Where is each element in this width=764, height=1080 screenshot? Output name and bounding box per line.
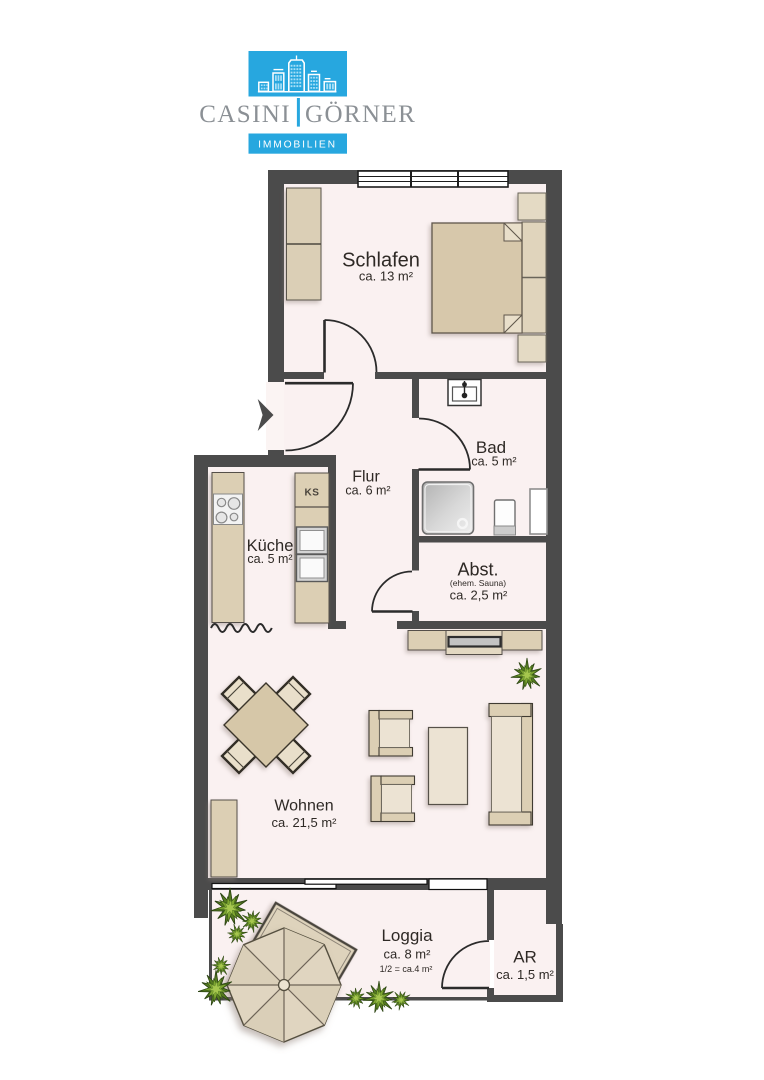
svg-text:(ehem. Sauna): (ehem. Sauna) — [450, 578, 506, 588]
svg-text:1/2 = ca.4 m²: 1/2 = ca.4 m² — [380, 964, 433, 974]
svg-text:ca. 1,5 m²: ca. 1,5 m² — [496, 967, 554, 982]
svg-text:CASINI: CASINI — [199, 101, 291, 128]
svg-text:AR: AR — [513, 948, 537, 967]
svg-text:ca. 5 m²: ca. 5 m² — [247, 552, 292, 566]
svg-text:Wohnen: Wohnen — [274, 798, 333, 815]
svg-text:ca. 6 m²: ca. 6 m² — [345, 484, 390, 498]
svg-text:ca. 5 m²: ca. 5 m² — [471, 455, 516, 469]
svg-text:ca. 13 m²: ca. 13 m² — [359, 269, 414, 284]
svg-text:ca. 2,5 m²: ca. 2,5 m² — [450, 588, 508, 603]
svg-text:GÖRNER: GÖRNER — [305, 101, 416, 128]
svg-text:ca. 8 m²: ca. 8 m² — [384, 947, 432, 962]
svg-text:KS: KS — [305, 488, 320, 499]
svg-text:IMMOBILIEN: IMMOBILIEN — [258, 139, 337, 150]
svg-text:Loggia: Loggia — [381, 926, 433, 945]
svg-text:ca. 21,5 m²: ca. 21,5 m² — [271, 815, 337, 830]
svg-text:Abst.: Abst. — [457, 560, 498, 580]
